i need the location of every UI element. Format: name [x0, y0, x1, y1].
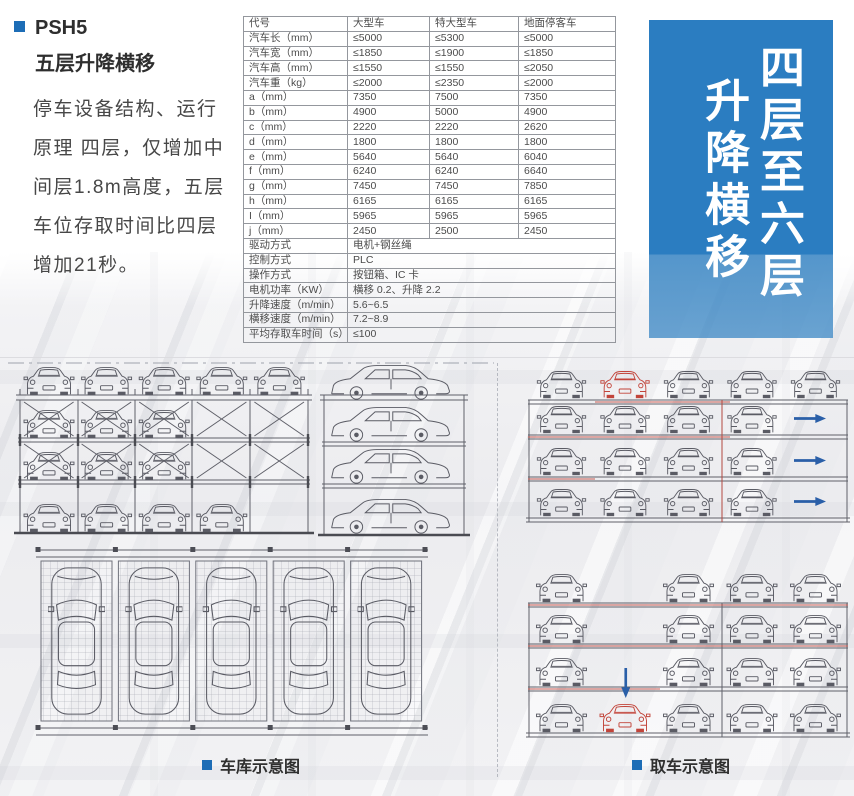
car-glyph: [601, 407, 649, 434]
car-glyph: [82, 453, 132, 481]
spec-cell: ≤100: [348, 327, 616, 342]
car-glyph: [727, 659, 777, 687]
car-glyph: [728, 449, 776, 476]
car-glyph: [728, 490, 776, 517]
spec-cell: 4900: [348, 105, 430, 120]
spec-cell: 2450: [348, 224, 430, 239]
spec-cell: 6165: [348, 194, 430, 209]
rail-node: [345, 725, 350, 730]
spec-cell: 7.2~8.9: [348, 312, 616, 327]
spec-cell: ≤2050: [519, 61, 616, 76]
retrieval-caption: 取车示意图: [632, 753, 730, 777]
rail-node: [190, 725, 195, 730]
spec-cell: 特大型车: [430, 17, 519, 32]
banner-line2: 升降横移: [695, 77, 750, 362]
spec-cell: 5000: [430, 105, 519, 120]
spec-cell: 汽车重（kg）: [244, 76, 348, 91]
car-glyph: [537, 616, 587, 644]
car-glyph: [791, 616, 841, 644]
move-right-arrow: [794, 414, 826, 423]
spec-cell: ≤5000: [519, 31, 616, 46]
car-glyph: [664, 659, 714, 687]
garage-caption-label: 车库示意图: [220, 753, 300, 777]
spec-cell: h（mm）: [244, 194, 348, 209]
spec-cell: 7450: [430, 179, 519, 194]
spec-cell: 按钮箱、IC 卡: [348, 268, 616, 283]
car-glyph: [537, 407, 585, 434]
vertical-dashed-divider: [497, 363, 498, 777]
spec-cell: ≤2000: [348, 76, 430, 91]
spec-cell: ≤1550: [348, 61, 430, 76]
car-glyph: [601, 490, 649, 517]
brochure-page: PSH5 五层升降横移 停车设备结构、运行原理 四层，仅增加中间层1.8m高度，…: [0, 0, 854, 796]
car-glyph: [24, 505, 74, 533]
spec-cell: 控制方式: [244, 253, 348, 268]
spec-cell: 升降速度（m/min）: [244, 298, 348, 313]
spec-cell: 1800: [348, 135, 430, 150]
car-glyph: [24, 411, 74, 439]
car-glyph: [82, 368, 132, 396]
spec-cell: 1800: [430, 135, 519, 150]
car-glyph: [727, 575, 777, 603]
car-glyph: [139, 368, 189, 396]
car-glyph: [139, 411, 189, 439]
car-glyph: [727, 705, 777, 733]
car-glyph: [24, 453, 74, 481]
spec-cell: 代号: [244, 17, 348, 32]
spec-cell: 电机功率（KW）: [244, 283, 348, 298]
spec-cell: 6165: [519, 194, 616, 209]
spec-cell: 6240: [348, 164, 430, 179]
move-right-arrow: [794, 497, 826, 506]
rail-node: [113, 725, 118, 730]
spec-cell: 操作方式: [244, 268, 348, 283]
spec-cell: 5640: [430, 150, 519, 165]
spec-cell: 地面停客车: [519, 17, 616, 32]
spec-cell: 7350: [519, 90, 616, 105]
car-glyph: [82, 411, 132, 439]
spec-cell: I（mm）: [244, 209, 348, 224]
car-glyph: [664, 490, 712, 517]
spec-cell: 5965: [348, 209, 430, 224]
car-glyph: [537, 490, 585, 517]
spec-cell: 2220: [430, 120, 519, 135]
spec-cell: 2620: [519, 120, 616, 135]
car-glyph: [537, 449, 585, 476]
square-bullet-icon: [14, 21, 25, 32]
spec-cell: 5965: [519, 209, 616, 224]
garage-caption: 车库示意图: [202, 753, 300, 777]
rail-node: [423, 725, 428, 730]
car-glyph: [24, 368, 74, 396]
car-glyph: [332, 499, 450, 533]
spec-cell: 2500: [430, 224, 519, 239]
spec-cell: b（mm）: [244, 105, 348, 120]
spec-cell: d（mm）: [244, 135, 348, 150]
car-glyph: [254, 368, 304, 396]
product-code: PSH5: [35, 17, 87, 39]
car-glyph: [664, 575, 714, 603]
retrieval-caption-label: 取车示意图: [650, 753, 730, 777]
spec-cell: j（mm）: [244, 224, 348, 239]
highlighted-car: [600, 705, 650, 733]
spec-cell: ≤5000: [348, 31, 430, 46]
car-glyph: [728, 372, 776, 399]
car-glyph: [139, 453, 189, 481]
spec-table: 代号大型车特大型车地面停客车汽车长（mm）≤5000≤5300≤5000汽车宽（…: [243, 16, 616, 343]
car-glyph: [664, 372, 712, 399]
spec-cell: ≤1550: [430, 61, 519, 76]
spec-cell: c（mm）: [244, 120, 348, 135]
car-glyph: [664, 407, 712, 434]
car-glyph: [197, 505, 247, 533]
spec-cell: 7450: [348, 179, 430, 194]
spec-cell: 1800: [519, 135, 616, 150]
spec-cell: 5965: [430, 209, 519, 224]
spec-cell: 2220: [348, 120, 430, 135]
rail-node: [345, 547, 350, 552]
car-glyph: [728, 407, 776, 434]
spec-cell: 6240: [430, 164, 519, 179]
car-glyph: [727, 616, 777, 644]
spec-cell: 横移 0.2、升降 2.2: [348, 283, 616, 298]
spec-cell: ≤1850: [348, 46, 430, 61]
product-name: 五层升降横移: [14, 47, 226, 76]
spec-cell: 2450: [519, 224, 616, 239]
spec-cell: 汽车宽（mm）: [244, 46, 348, 61]
spec-cell: 平均存取车时间（s）: [244, 327, 348, 342]
rail-node: [268, 547, 273, 552]
car-glyph: [537, 372, 585, 399]
car-glyph: [332, 407, 450, 441]
move-right-arrow: [794, 456, 826, 465]
spec-cell: ≤2000: [519, 76, 616, 91]
rail-node: [190, 547, 195, 552]
spec-cell: 7850: [519, 179, 616, 194]
spec-cell: g（mm）: [244, 179, 348, 194]
spec-cell: 7350: [348, 90, 430, 105]
car-glyph: [332, 365, 450, 399]
spec-cell: ≤2350: [430, 76, 519, 91]
garage-diagram: [8, 358, 494, 748]
car-glyph: [791, 659, 841, 687]
car-glyph: [791, 575, 841, 603]
spec-cell: ≤1850: [519, 46, 616, 61]
spec-cell: ≤1900: [430, 46, 519, 61]
spec-cell: 驱动方式: [244, 238, 348, 253]
square-bullet-icon: [632, 760, 642, 770]
spec-cell: 横移速度（m/min）: [244, 312, 348, 327]
car-glyph: [537, 705, 587, 733]
spec-cell: 6165: [430, 194, 519, 209]
spec-cell: 5.6~6.5: [348, 298, 616, 313]
car-glyph: [791, 372, 839, 399]
spec-cell: 6040: [519, 150, 616, 165]
car-glyph: [82, 505, 132, 533]
rail-node: [36, 725, 41, 730]
product-description: 停车设备结构、运行原理 四层，仅增加中间层1.8m高度，五层车位存取时间比四层增…: [14, 91, 226, 286]
spec-cell: 电机+钢丝绳: [348, 238, 616, 253]
rail-node: [268, 725, 273, 730]
spec-cell: 6640: [519, 164, 616, 179]
spec-cell: 7500: [430, 90, 519, 105]
square-bullet-icon: [202, 760, 212, 770]
side-banner: 四层至六层 升降横移: [649, 20, 833, 338]
car-glyph: [664, 616, 714, 644]
spec-cell: 汽车长（mm）: [244, 31, 348, 46]
car-glyph: [664, 705, 714, 733]
move-down-arrow: [621, 668, 630, 698]
spec-cell: PLC: [348, 253, 616, 268]
highlighted-car: [601, 372, 649, 399]
spec-cell: 汽车高（mm）: [244, 61, 348, 76]
spec-cell: f（mm）: [244, 164, 348, 179]
spec-cell: a（mm）: [244, 90, 348, 105]
car-glyph: [537, 659, 587, 687]
intro-block: PSH5 五层升降横移 停车设备结构、运行原理 四层，仅增加中间层1.8m高度，…: [14, 16, 226, 286]
rail-node: [113, 547, 118, 552]
retrieval-diagram: [500, 358, 854, 758]
car-glyph: [537, 575, 587, 603]
banner-text: 四层至六层 升降横移: [695, 20, 833, 362]
spec-cell: 4900: [519, 105, 616, 120]
rail-node: [36, 547, 41, 552]
car-glyph: [332, 449, 450, 483]
product-code-heading: PSH5: [14, 16, 226, 41]
spec-cell: 大型车: [348, 17, 430, 32]
spec-cell: 5640: [348, 150, 430, 165]
car-glyph: [601, 449, 649, 476]
spec-cell: e（mm）: [244, 150, 348, 165]
car-glyph: [664, 449, 712, 476]
spec-cell: ≤5300: [430, 31, 519, 46]
banner-line1: 四层至六层: [750, 44, 805, 362]
car-glyph: [139, 505, 189, 533]
car-glyph: [197, 368, 247, 396]
car-glyph: [791, 705, 841, 733]
rail-node: [423, 547, 428, 552]
